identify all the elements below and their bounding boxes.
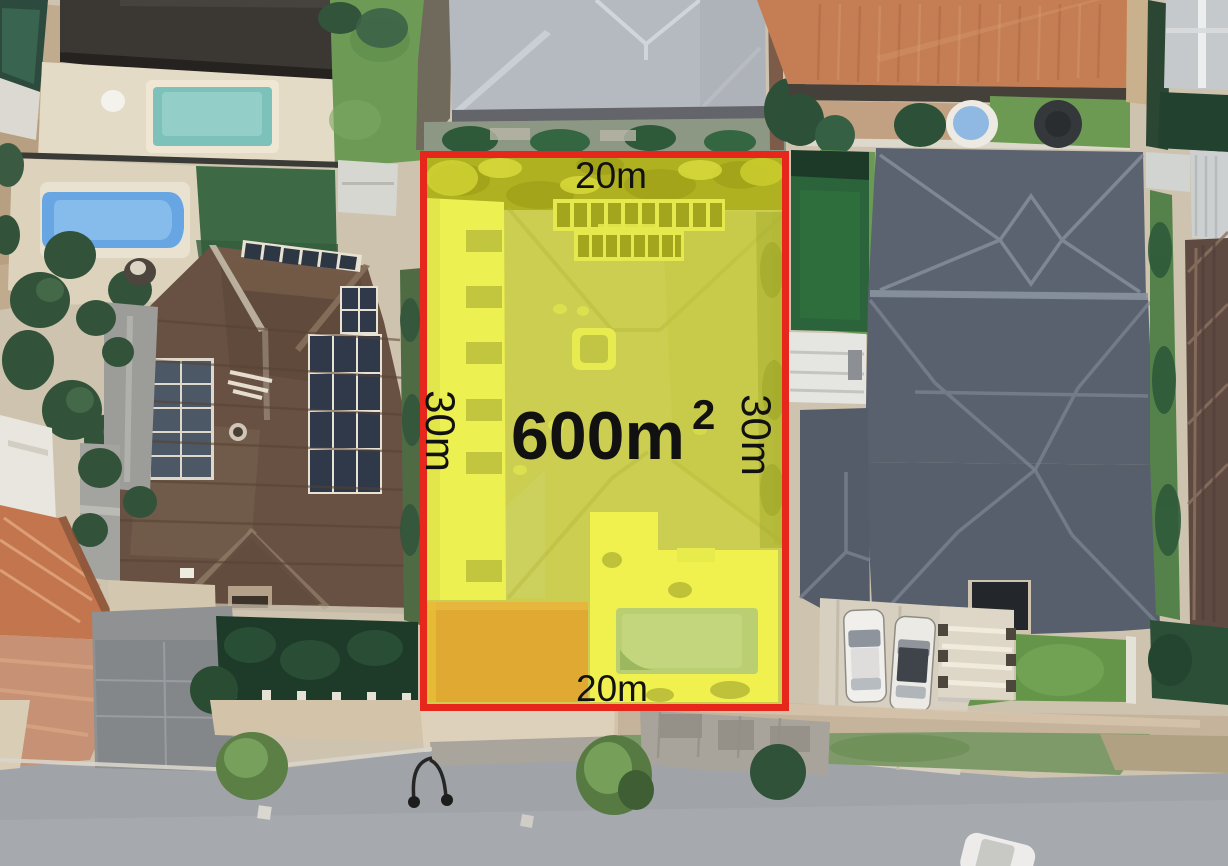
svg-text:600m: 600m — [511, 398, 685, 474]
svg-text:30m: 30m — [417, 390, 464, 472]
svg-text:2: 2 — [692, 391, 715, 438]
svg-text:30m: 30m — [733, 394, 780, 476]
svg-text:20m: 20m — [575, 155, 647, 196]
svg-text:20m: 20m — [576, 668, 648, 709]
